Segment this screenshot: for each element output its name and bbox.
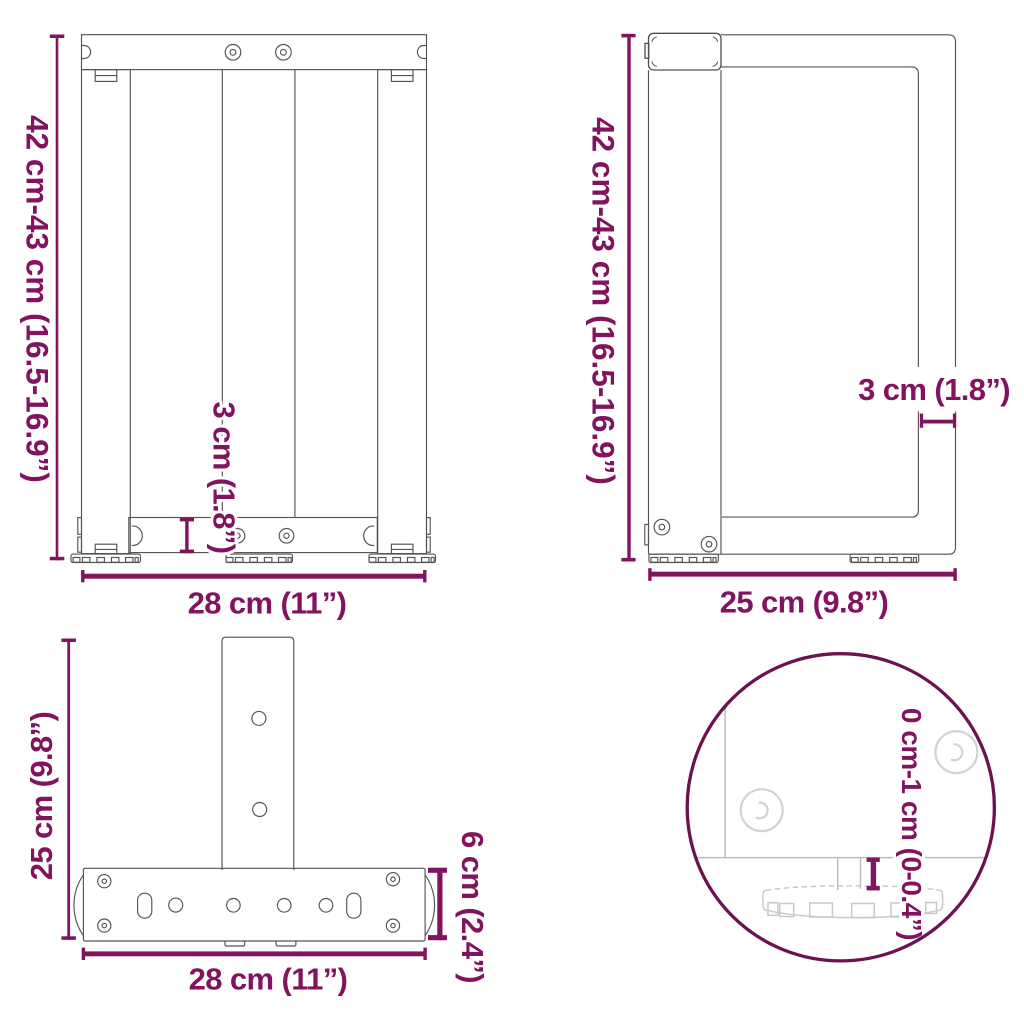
svg-text:25 cm (9.8”): 25 cm (9.8”) (24, 712, 59, 881)
svg-text:3 cm (1.8”): 3 cm (1.8”) (207, 402, 242, 554)
svg-text:42 cm-43 cm (16.5-16.9”): 42 cm-43 cm (16.5-16.9”) (20, 115, 56, 483)
svg-text:25 cm (9.8”): 25 cm (9.8”) (720, 585, 889, 620)
svg-text:28 cm (11”): 28 cm (11”) (189, 962, 348, 997)
svg-text:6 cm (2.4”): 6 cm (2.4”) (455, 831, 490, 983)
svg-text:3 cm (1.8”): 3 cm (1.8”) (858, 372, 1010, 407)
svg-text:28 cm (11”): 28 cm (11”) (188, 586, 347, 621)
svg-text:0 cm-1 cm (0-0.4”): 0 cm-1 cm (0-0.4”) (896, 708, 927, 940)
svg-text:42 cm-43 cm (16.5-16.9”): 42 cm-43 cm (16.5-16.9”) (586, 117, 622, 485)
